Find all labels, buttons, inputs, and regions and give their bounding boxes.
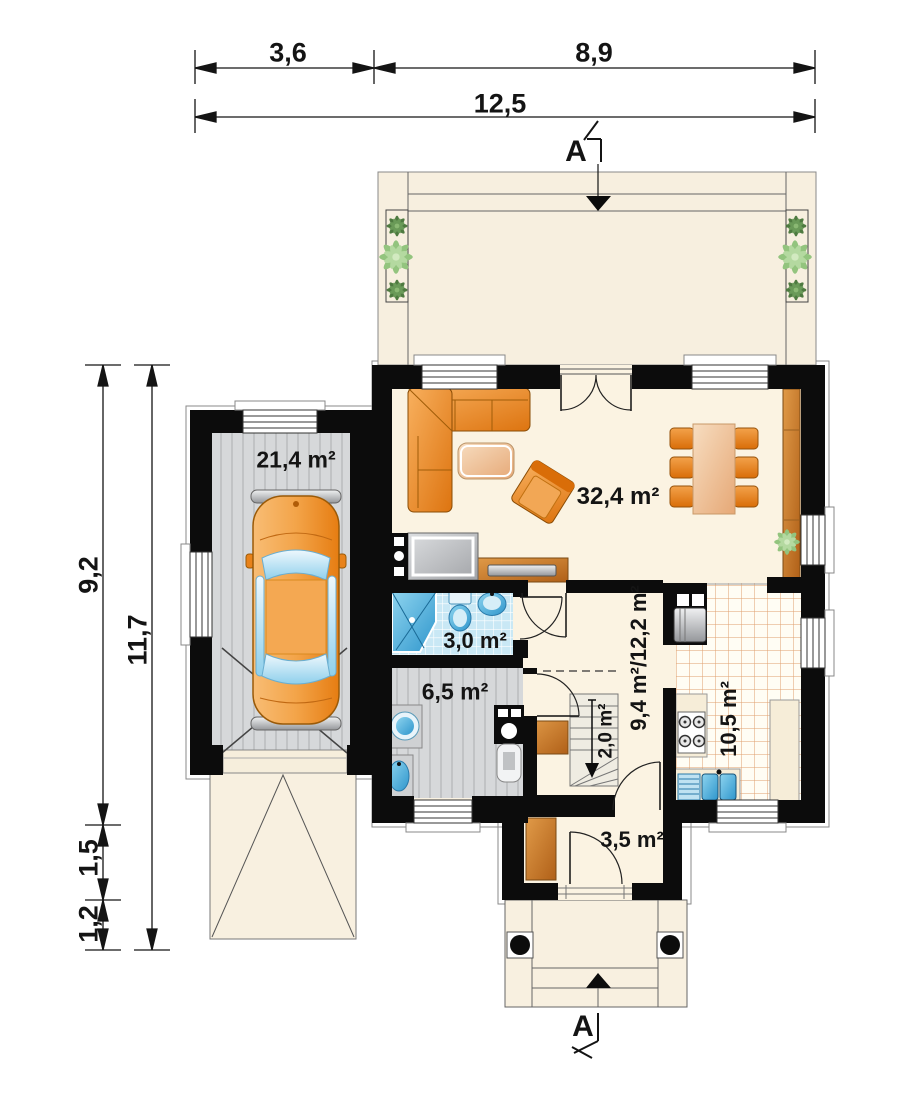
washing-machine bbox=[388, 705, 422, 748]
garage-door bbox=[223, 750, 347, 773]
bathroom-area-label: 3,0 m² bbox=[443, 630, 507, 652]
dim-top-total: 12,5 bbox=[474, 91, 527, 118]
tv-screen bbox=[488, 565, 556, 576]
stairs-area-label: 2,0 m² bbox=[597, 704, 616, 759]
fridge-unit bbox=[663, 583, 707, 645]
kitchen-area-label: 10,5 m² bbox=[718, 681, 740, 757]
fireplace bbox=[390, 533, 478, 580]
bathroom-sink bbox=[478, 592, 506, 616]
section-label-bottom: A bbox=[572, 1012, 594, 1042]
section-label-top: A bbox=[565, 137, 587, 167]
utility-area-label: 6,5 m² bbox=[422, 681, 488, 704]
toilet bbox=[449, 591, 471, 631]
dim-top-seg1: 3,6 bbox=[269, 40, 307, 67]
floor-plan: 3,6 8,9 12,5 9,2 11,7 1,5 1,2 A A 21,4 m… bbox=[0, 0, 900, 1100]
dim-left-seg1: 9,2 bbox=[76, 556, 103, 594]
vestibule-area-label: 3,5 m² bbox=[600, 829, 664, 851]
boiler bbox=[494, 705, 524, 782]
dim-top-seg2: 8,9 bbox=[575, 40, 613, 67]
kitchen-counter bbox=[770, 700, 799, 803]
kitchen-sink bbox=[675, 769, 740, 803]
fridge bbox=[674, 608, 706, 642]
garage-area-label: 21,4 m² bbox=[256, 449, 335, 472]
window-garage-left bbox=[190, 552, 212, 637]
stove bbox=[676, 694, 707, 757]
wardrobe bbox=[526, 818, 556, 880]
dining-set bbox=[670, 424, 758, 514]
coffee-table bbox=[458, 443, 514, 479]
floor-plan-drawing bbox=[0, 0, 900, 1100]
car bbox=[246, 490, 346, 730]
dim-left-total: 11,7 bbox=[125, 614, 152, 665]
porch bbox=[505, 900, 687, 1007]
hall-area-label: 9,4 m²/12,2 m² bbox=[628, 585, 650, 731]
entrance-threshold bbox=[558, 885, 632, 899]
dim-left-seg3: 1,2 bbox=[76, 905, 103, 943]
dining-table bbox=[693, 424, 735, 514]
kitchen-passage bbox=[663, 645, 676, 688]
living-room-area-label: 32,4 m² bbox=[577, 485, 660, 509]
dim-left-seg2: 1,5 bbox=[76, 839, 103, 877]
driveway bbox=[210, 772, 356, 939]
